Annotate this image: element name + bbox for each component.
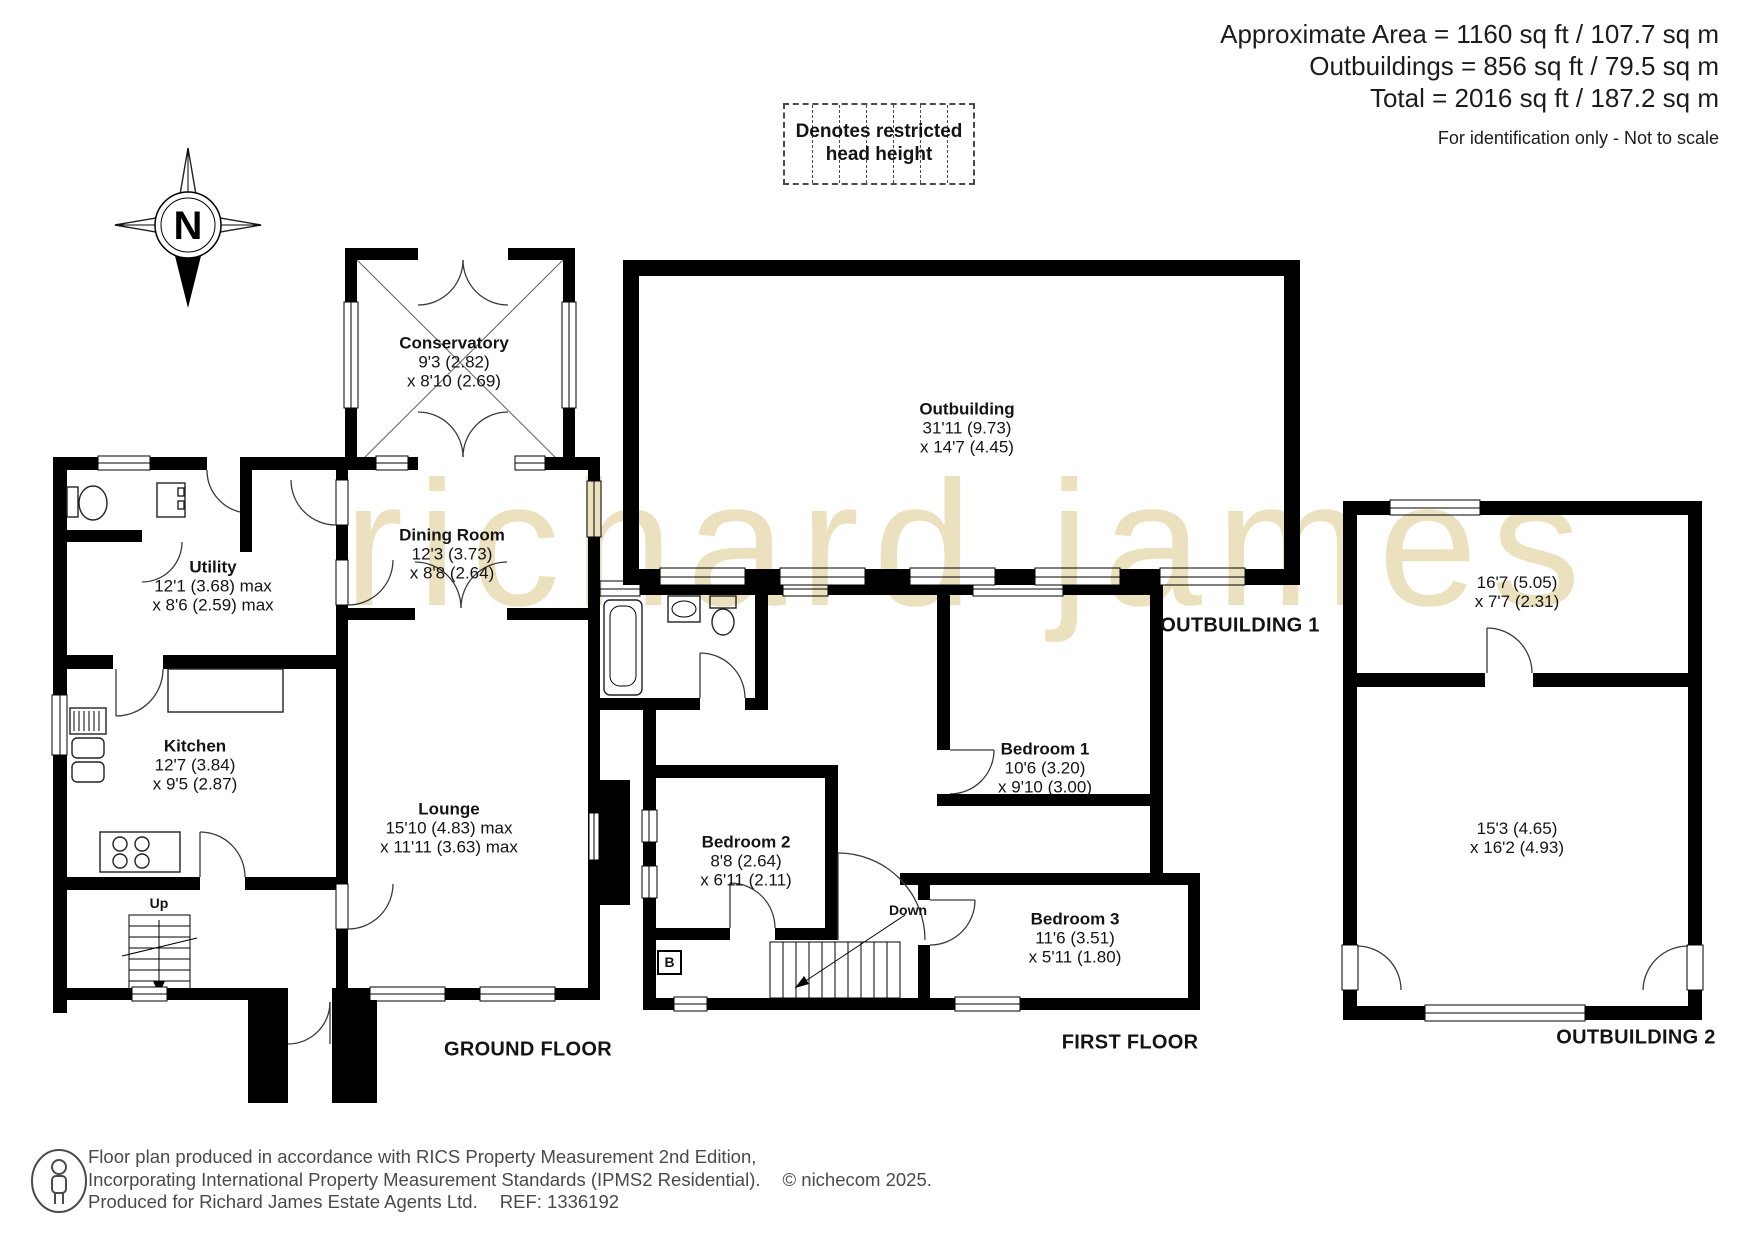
room-label-dining-room: Dining Room 12'3 (3.73) x 8'8 (2.64) [399,526,505,583]
ground-floor-title: GROUND FLOOR [444,1039,612,1062]
agency-watermark: richard james [344,455,1594,633]
kitchen-sink [70,708,106,782]
stairs-up-label: Up [150,895,169,911]
room-label-bedroom2: Bedroom 2 8'8 (2.64) x 6'11 (2.11) [700,833,791,890]
outbuilding1-title: OUTBUILDING 1 [1160,615,1319,638]
outbuildings-area: Outbuildings = 856 sq ft / 79.5 sq m [1220,50,1719,82]
reference-number: REF: 1336192 [500,1191,619,1212]
kitchen-worktop [168,669,283,712]
kitchen-hob [100,832,180,872]
footer-line3: Produced for Richard James Estate Agents… [88,1191,932,1214]
room-label-bedroom3: Bedroom 3 11'6 (3.51) x 5'11 (1.80) [1029,910,1122,967]
porch-wall [332,1000,377,1103]
floorplan-page: Approximate Area = 1160 sq ft / 107.7 sq… [0,0,1755,1241]
copyright: © nichecom 2025. [783,1169,932,1190]
room-label-conservatory: Conservatory 9'3 (2.82) x 8'10 (2.69) [399,334,509,391]
restricted-head-height-legend: Denotes restricted head height [783,103,975,185]
stairs-up [122,915,197,996]
porch-wall [248,1000,288,1103]
room-label-lounge: Lounge 15'10 (4.83) max x 11'11 (3.63) m… [380,800,518,857]
toilet-cistern [67,487,78,517]
scale-disclaimer: For identification only - Not to scale [1220,122,1719,154]
footer-line2: Incorporating International Property Mea… [88,1169,932,1192]
room-label-outbuilding2-room1: 16'7 (5.05) x 7'7 (2.31) [1475,573,1560,611]
room-label-utility: Utility 12'1 (3.68) max x 8'6 (2.59) max [152,558,273,615]
legend-text: Denotes restricted head height [785,105,973,166]
footer-disclaimer: Floor plan produced in accordance with R… [88,1146,932,1214]
total-area: Total = 2016 sq ft / 187.2 sq m [1220,82,1719,114]
room-label-outbuilding: Outbuilding 31'11 (9.73) x 14'7 (4.45) [919,400,1014,457]
toilet-bowl [79,486,107,520]
approximate-area: Approximate Area = 1160 sq ft / 107.7 sq… [1220,18,1719,50]
boiler-marker: B [657,950,682,975]
person-icon [30,1148,88,1216]
footer-line1: Floor plan produced in accordance with R… [88,1146,932,1169]
room-label-kitchen: Kitchen 12'7 (3.84) x 9'5 (2.87) [153,737,238,794]
stairs-down-label: Down [889,902,927,918]
room-label-bedroom1: Bedroom 1 10'6 (3.20) x 9'10 (3.00) [998,740,1092,797]
room-label-outbuilding2-room2: 15'3 (4.65) x 16'2 (4.93) [1470,819,1564,857]
area-summary: Approximate Area = 1160 sq ft / 107.7 sq… [1220,18,1719,154]
ground-floor-plan [40,240,640,1110]
first-floor-title: FIRST FLOOR [1062,1032,1199,1055]
outbuilding2-title: OUTBUILDING 2 [1556,1027,1715,1050]
